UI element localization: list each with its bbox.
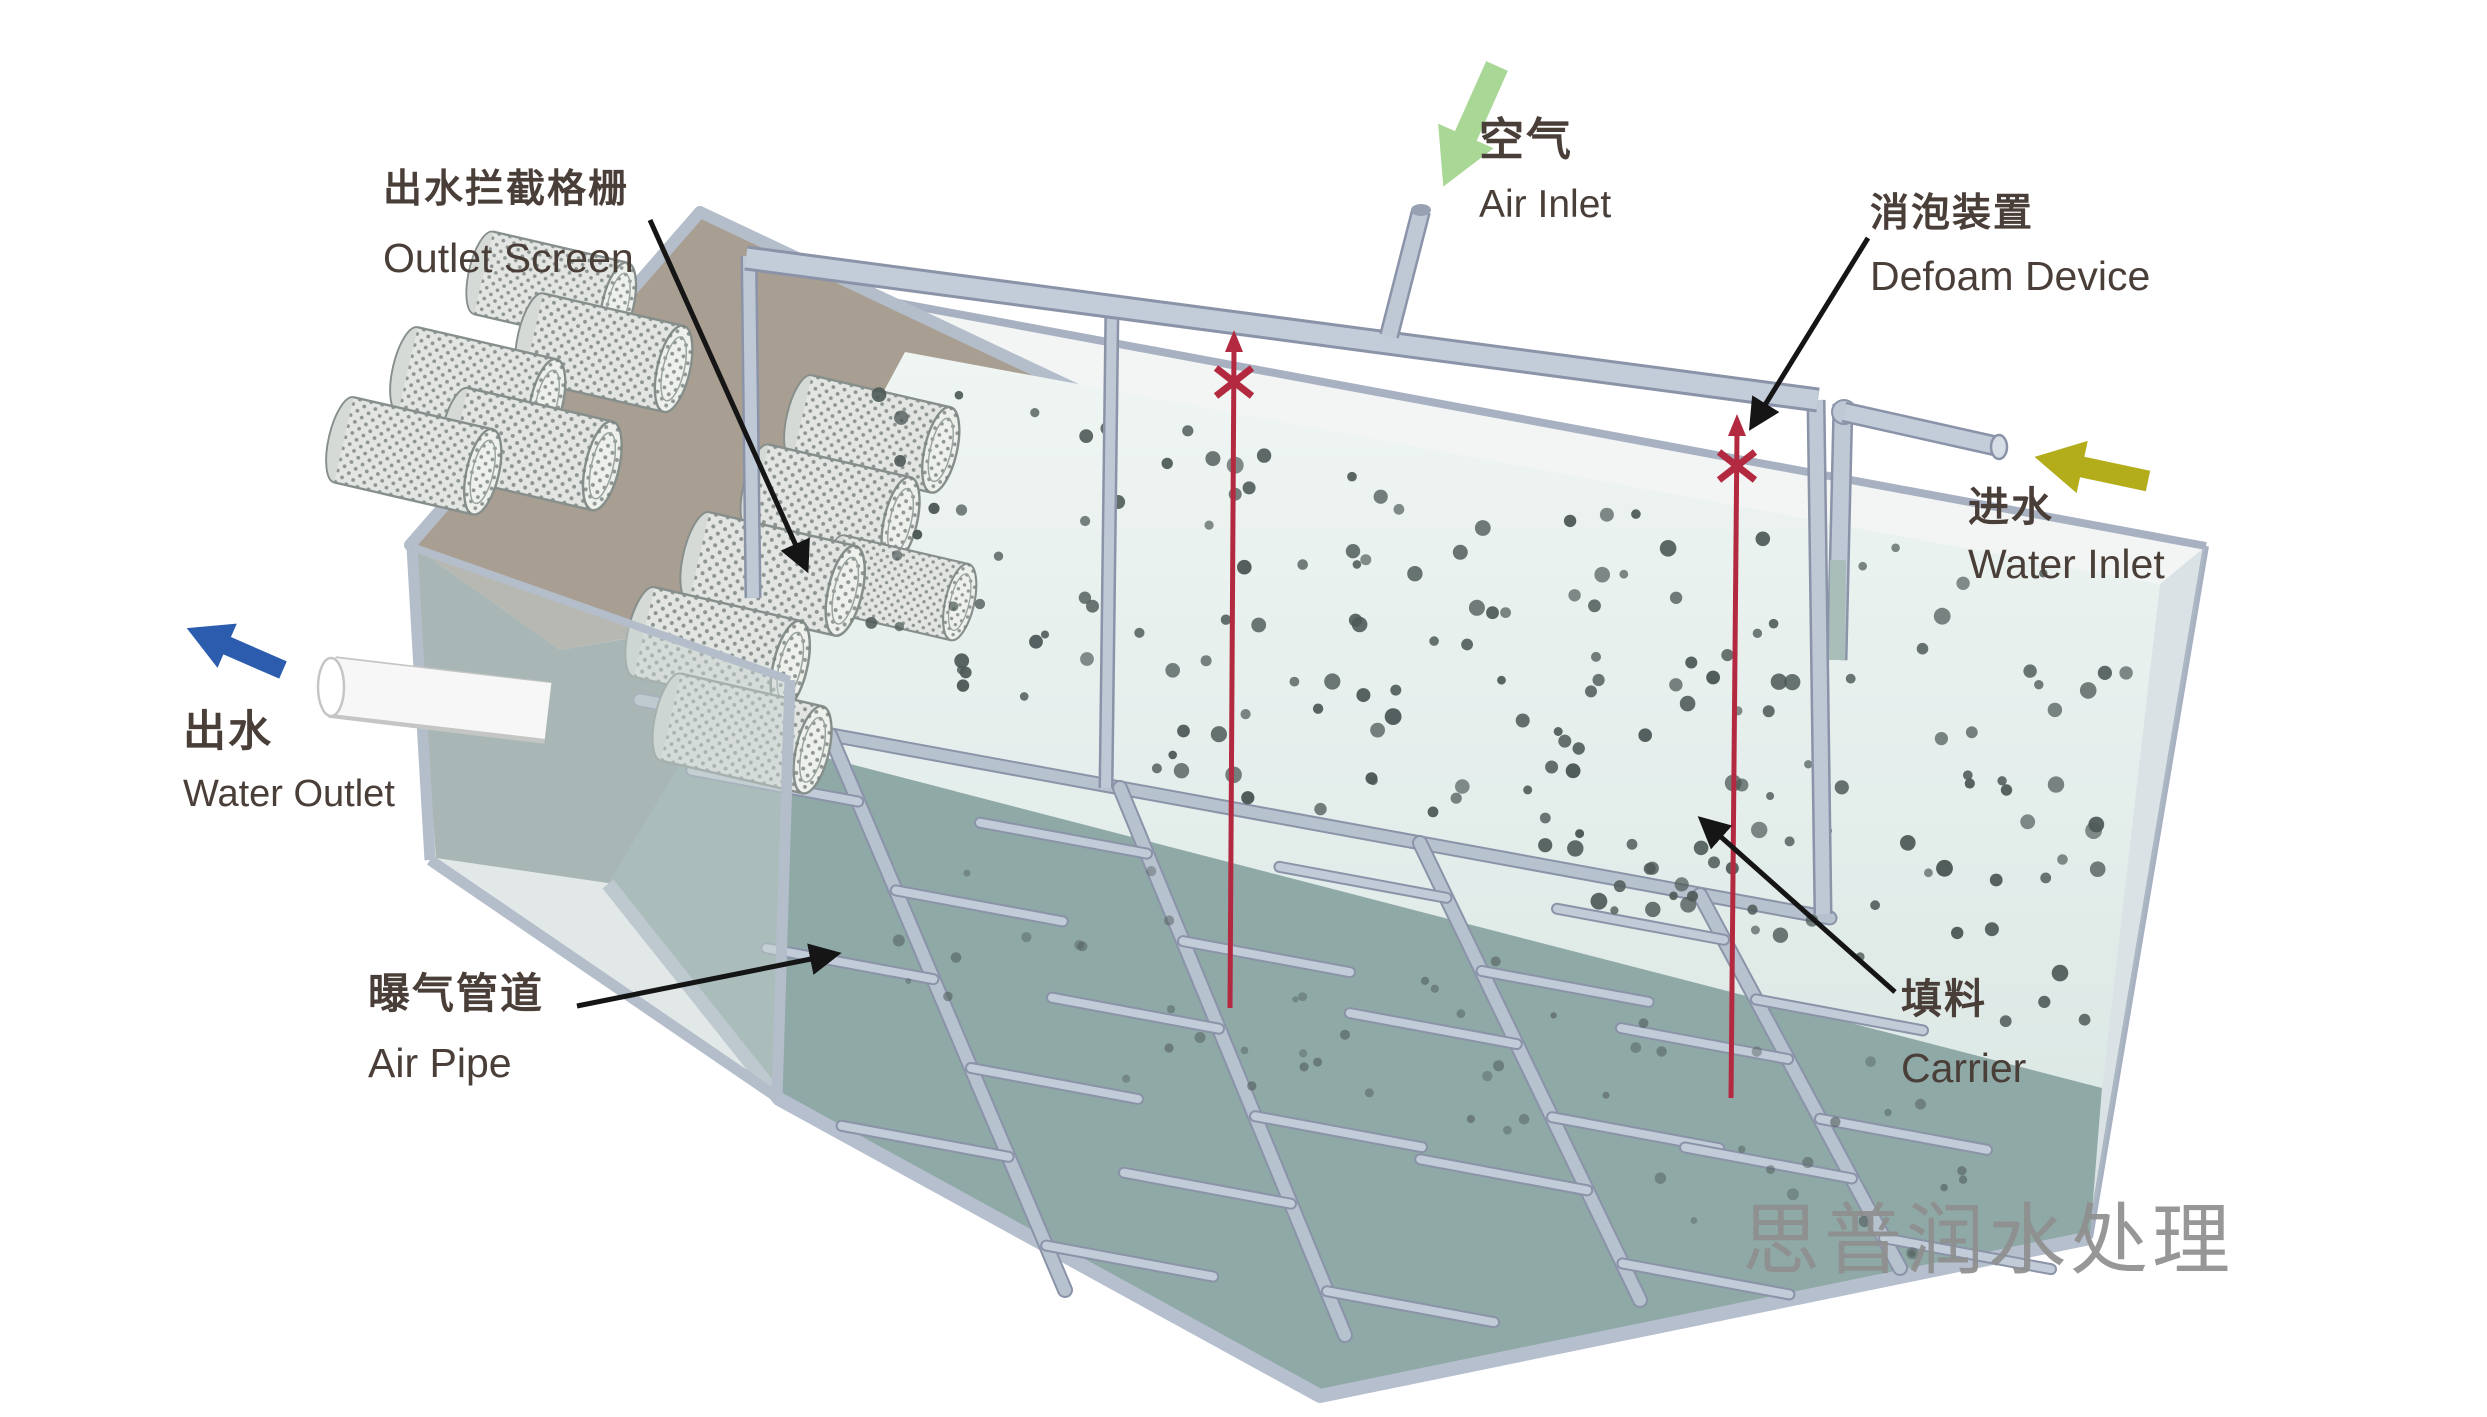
label-water-inlet-en: Water Inlet xyxy=(1968,543,2165,586)
label-defoam-device-zh: 消泡装置 xyxy=(1870,194,2150,235)
label-outlet-screen: 出水拦截格栅 Outlet Screen xyxy=(383,170,634,280)
label-water-outlet: 出水 Water Outlet xyxy=(183,710,395,815)
label-carrier-zh: 填料 xyxy=(1901,978,2026,1021)
air-inlet-branch-pipe xyxy=(1389,204,1431,336)
label-air-pipe-zh: 曝气管道 xyxy=(368,972,544,1016)
label-carrier: 填料 Carrier xyxy=(1901,978,2026,1090)
label-carrier-en: Carrier xyxy=(1901,1047,2026,1090)
water-outlet-flow-arrow xyxy=(177,606,293,692)
label-air-inlet: 空气 Air Inlet xyxy=(1479,116,1611,226)
label-water-inlet: 进水 Water Inlet xyxy=(1968,486,2165,586)
label-defoam-device-en: Defoam Device xyxy=(1870,255,2150,298)
label-defoam-device: 消泡装置 Defoam Device xyxy=(1870,194,2150,298)
label-water-outlet-zh: 出水 xyxy=(183,710,395,755)
label-air-inlet-zh: 空气 xyxy=(1479,116,1611,163)
watermark: 思普润水处理 xyxy=(1742,1178,2234,1290)
label-air-pipe-en: Air Pipe xyxy=(368,1042,544,1085)
label-water-outlet-en: Water Outlet xyxy=(183,775,395,815)
label-air-pipe: 曝气管道 Air Pipe xyxy=(368,972,544,1085)
label-air-inlet-en: Air Inlet xyxy=(1479,185,1611,226)
label-outlet-screen-en: Outlet Screen xyxy=(383,237,634,280)
label-water-inlet-zh: 进水 xyxy=(1968,486,2165,529)
diagram-canvas: 出水拦截格栅 Outlet Screen 空气 Air Inlet 消泡装置 D… xyxy=(0,0,2487,1417)
label-outlet-screen-zh: 出水拦截格栅 xyxy=(383,170,634,211)
